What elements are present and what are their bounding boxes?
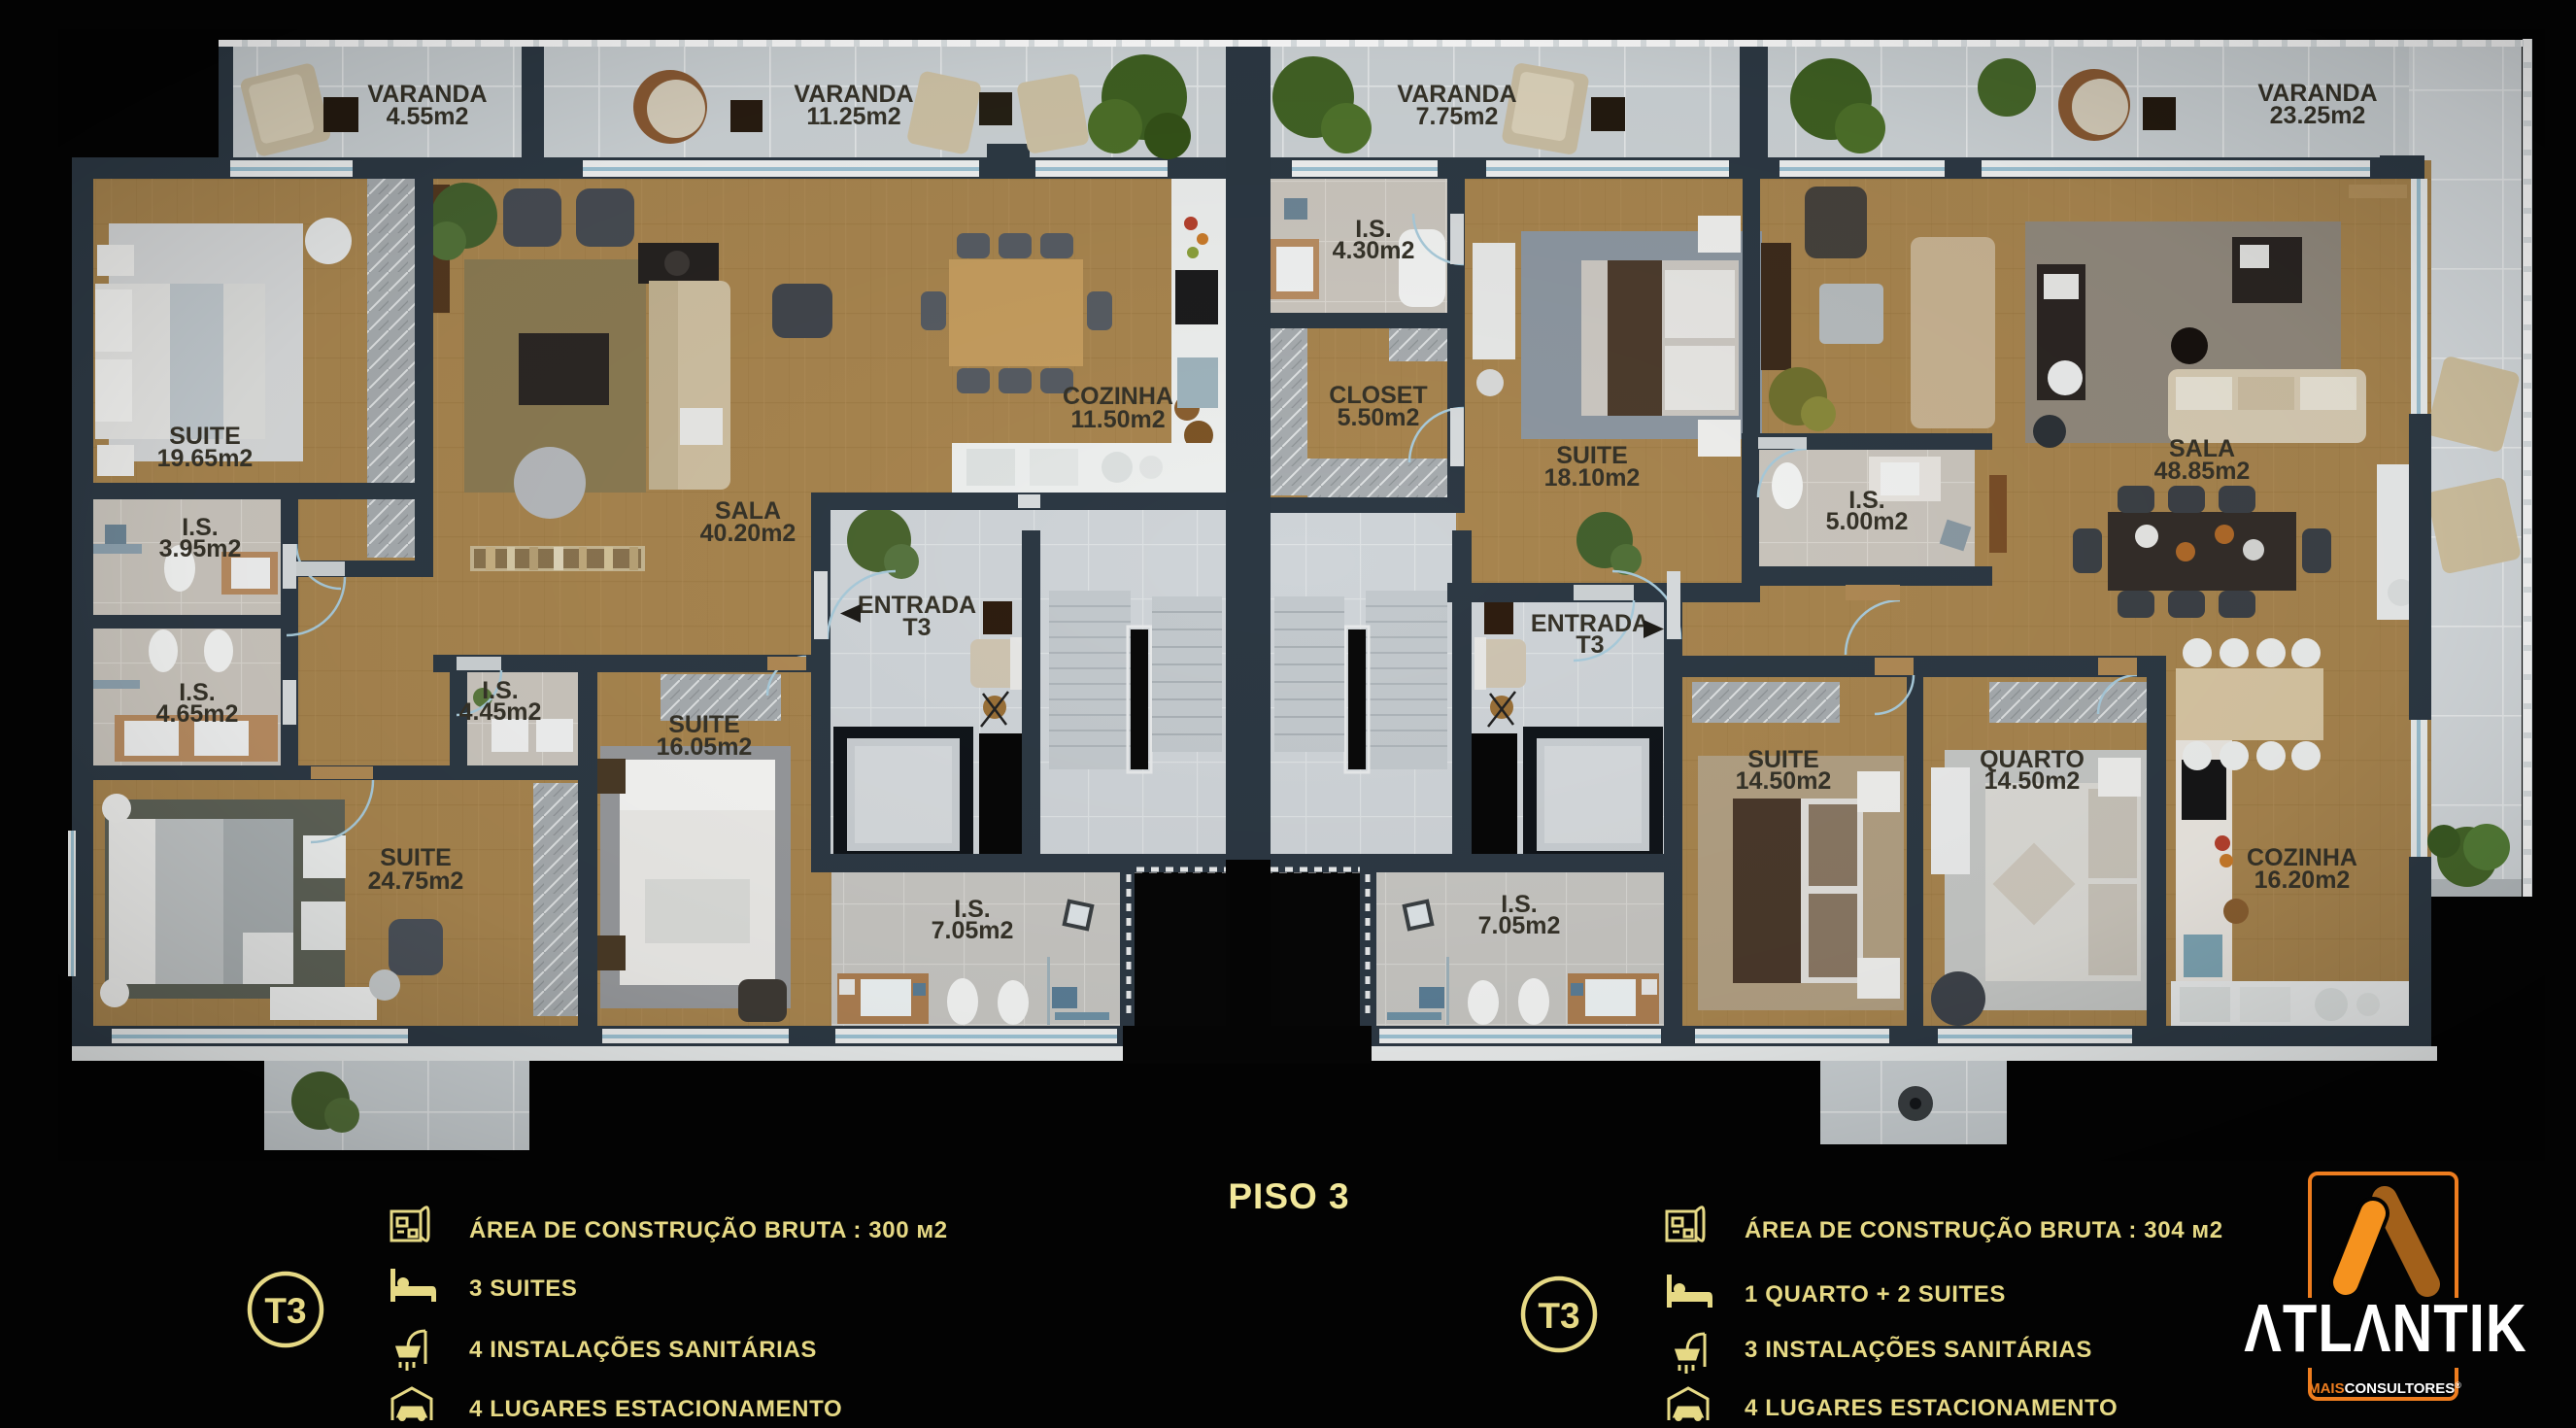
svg-text:ÁREA DE CONSTRUÇÃO BRUTA : 30: ÁREA DE CONSTRUÇÃO BRUTA : 300 м2 xyxy=(469,1216,948,1243)
svg-text:4 INSTALAÇÕES SANITÁRIAS: 4 INSTALAÇÕES SANITÁRIAS xyxy=(469,1336,817,1363)
svg-text:4 LUGARES ESTACIONAMENTO: 4 LUGARES ESTACIONAMENTO xyxy=(1745,1395,2118,1421)
svg-text:3 SUITES: 3 SUITES xyxy=(469,1275,578,1302)
svg-text:3 INSTALAÇÕES SANITÁRIAS: 3 INSTALAÇÕES SANITÁRIAS xyxy=(1745,1336,2092,1363)
svg-text:T3: T3 xyxy=(264,1291,306,1331)
svg-text:MAISCONSULTORES®: MAISCONSULTORES® xyxy=(2308,1380,2461,1397)
svg-text:ÁREA DE CONSTRUÇÃO BRUTA : 30: ÁREA DE CONSTRUÇÃO BRUTA : 304 м2 xyxy=(1745,1216,2223,1243)
svg-text:4 LUGARES ESTACIONAMENTO: 4 LUGARES ESTACIONAMENTO xyxy=(469,1396,842,1422)
svg-text:PISO 3: PISO 3 xyxy=(1228,1176,1349,1216)
svg-text:1 QUARTO + 2 SUITES: 1 QUARTO + 2 SUITES xyxy=(1745,1281,2006,1308)
svg-text:T3: T3 xyxy=(1538,1296,1579,1336)
svg-text:ΛTLΛNTIK: ΛTLΛNTIK xyxy=(2244,1290,2526,1366)
